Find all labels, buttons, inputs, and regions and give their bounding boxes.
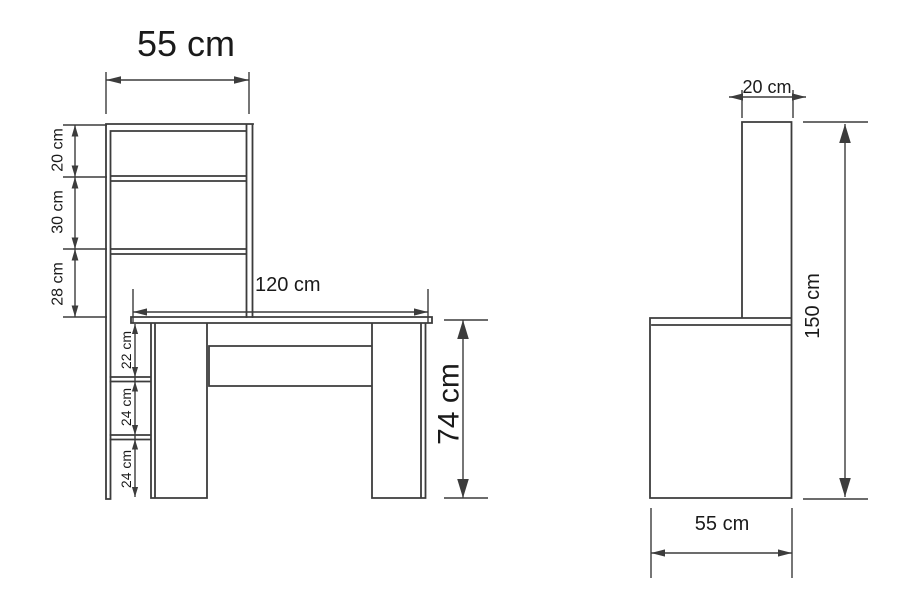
desk-width-label: 120 cm <box>255 274 321 296</box>
dim-shelf-gaps-lines <box>63 125 107 317</box>
under-gap-3-label: 24 cm <box>118 450 134 488</box>
diagram-canvas: 55 cm 20 cm 30 cm 28 cm 120 cm 22 <box>0 0 916 608</box>
under-gap-2-label: 24 cm <box>118 388 134 426</box>
dim-shelf-width-lines <box>106 72 249 114</box>
dim-shelf-gaps: 20 cm 30 cm 28 cm <box>50 125 107 317</box>
dim-desk-width: 120 cm <box>133 274 428 323</box>
column-depth-label: 20 cm <box>742 77 791 97</box>
dim-desk-height: 74 cm <box>433 320 489 498</box>
desk-depth-label: 55 cm <box>695 513 749 535</box>
shelf-gap-1-label: 20 cm <box>50 128 67 172</box>
side-outline <box>650 122 792 498</box>
dim-column-depth: 20 cm <box>729 77 806 118</box>
under-gap-1-label: 22 cm <box>118 331 134 369</box>
dim-total-height: 150 cm <box>802 122 868 499</box>
total-height-label: 150 cm <box>802 273 824 339</box>
desk-outline <box>111 317 433 498</box>
desk-height-label: 74 cm <box>433 363 466 445</box>
furniture-dimension-diagram: 55 cm 20 cm 30 cm 28 cm 120 cm 22 <box>0 0 916 608</box>
shelf-gap-2-label: 30 cm <box>50 190 67 234</box>
shelf-width-label: 55 cm <box>137 23 235 64</box>
dim-under-desk-gaps: 22 cm 24 cm 24 cm <box>118 324 138 497</box>
side-view: 20 cm 150 cm 55 cm <box>650 77 868 578</box>
shelf-gap-3-label: 28 cm <box>50 262 67 306</box>
dim-shelf-width <box>106 72 249 114</box>
dim-desk-depth: 55 cm <box>651 508 792 578</box>
front-view: 55 cm 20 cm 30 cm 28 cm 120 cm 22 <box>50 23 488 499</box>
